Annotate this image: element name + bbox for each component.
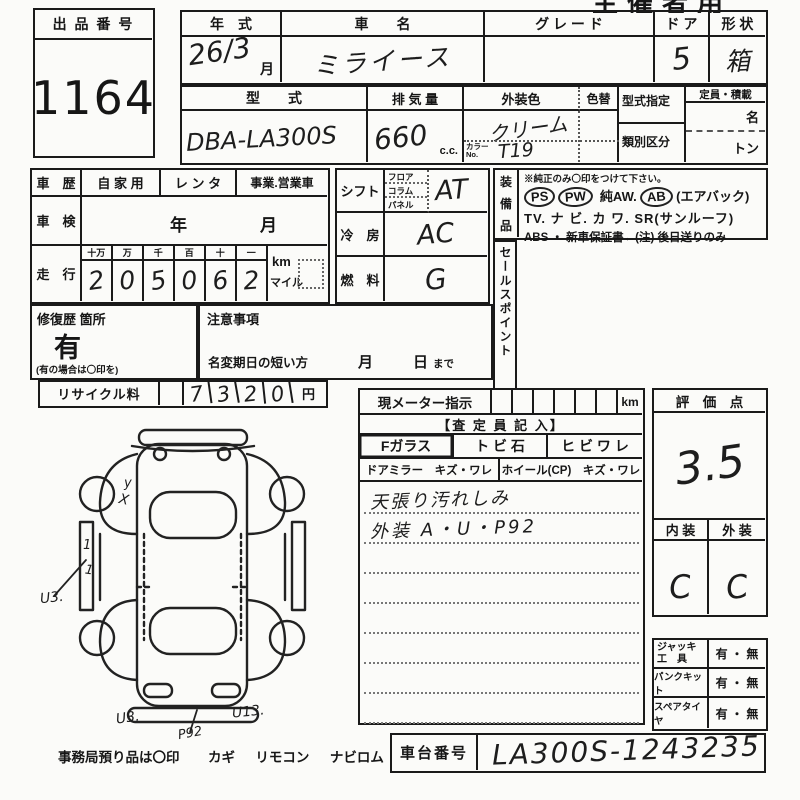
wheel-rear-right <box>270 621 304 655</box>
interior-grade-cell: C <box>654 539 709 614</box>
history-table: 車 歴 自 家 用 レ ン タ 事業.営業車 車 検 年 月 走 行 十万 2 … <box>30 168 330 304</box>
interior-grade: C <box>667 566 693 606</box>
inspection-label: 車 検 <box>32 197 82 246</box>
front-light-right <box>212 684 240 697</box>
displacement-value: 660 <box>372 118 429 156</box>
diagram-u3-left: U3. <box>39 589 64 607</box>
deadline-until: まで <box>433 356 454 371</box>
lot-number-box: 出 品 番 号 1164 <box>33 8 155 158</box>
mileage-digit: 5 <box>141 259 176 301</box>
model-value-cell: DBA-LA300S <box>182 111 368 162</box>
wheel-front-right <box>270 477 304 511</box>
chassis-box: 車台番号 LA300S-1243235 <box>390 733 766 773</box>
right-front-door <box>247 454 285 534</box>
sales-point-label: セールスポイント <box>497 246 514 358</box>
displacement-unit: c.c. <box>440 145 458 157</box>
capacity-label: 定員・積載 <box>686 87 765 103</box>
equipment-label-char: 装 <box>500 173 512 190</box>
name-label: 車 名 <box>282 12 485 37</box>
type-designation-cell: 型式指定 <box>619 87 686 124</box>
repair-box: 修復歴 箇所 有 (有の場合は〇印を) <box>30 304 198 380</box>
repair-note: (有の場合は〇印を) <box>36 362 118 376</box>
door-value-cell: 5 <box>655 37 710 82</box>
deadline-day: 日 <box>413 351 428 372</box>
puncture-kit-label: パンクキット <box>654 669 709 698</box>
capacity-persons-cell: 名 <box>686 103 765 132</box>
vehicle-spec-table: 型 式 排 気 量 外装色 色替 DBA-LA300S 660 c.c. クリー… <box>180 85 768 165</box>
meter-label: 現メーター指示 <box>360 390 492 415</box>
spare-tire-yesno: 有 ・ 無 <box>709 698 765 728</box>
wheel-label: ホイール(CP) キズ・ワレ <box>500 459 642 482</box>
shift-option-panel: パネル <box>385 198 427 210</box>
jack-yesno: 有 ・ 無 <box>709 640 765 669</box>
class-division-cell: 類別区分 <box>619 124 686 162</box>
office-item-navirom: ナビロム <box>330 750 384 765</box>
inspection-year: 年 <box>170 211 187 236</box>
exterior-label: 外 装 <box>709 518 765 539</box>
diagram-mark-y: y <box>124 476 132 491</box>
equipment-line1: PSPW 純AW. AB(エアバック) <box>524 186 765 207</box>
caution-box: 注意事項 名変期日の短い方 月 日 まで <box>198 304 493 380</box>
mileage-label: 走 行 <box>32 246 82 301</box>
color-change-cell <box>580 111 619 162</box>
shift-value: AT <box>433 174 468 207</box>
mileage-km: km <box>272 254 291 269</box>
name-value: ミライース <box>312 37 453 83</box>
score-label: 評 価 点 <box>654 390 765 413</box>
year-value-cell: 26/3 月 <box>182 37 282 82</box>
meter-digit-cell <box>513 390 534 415</box>
note-line <box>364 602 639 634</box>
wheel-front-left <box>80 477 114 511</box>
car-outline-svg <box>40 422 345 740</box>
jack-label: ジャッキ工 具 <box>657 642 697 666</box>
accessories-table: ジャッキ工 具 有 ・ 無 パンクキット 有 ・ 無 スペアタイヤ 有 ・ 無 <box>652 638 768 731</box>
shift-option-column: コラム <box>385 184 427 198</box>
history-label: 車 歴 <box>32 170 82 197</box>
diagram-u13: U13. <box>231 702 265 721</box>
inspection-value-cell: 年 月 <box>82 197 327 246</box>
shift-option-floor: フロア <box>385 170 427 184</box>
fuel-value-cell: G <box>385 257 487 301</box>
name-value-cell: ミライース <box>282 37 485 82</box>
office-label: 事務局預り品は〇印 <box>58 750 180 765</box>
mileage-digit: 0 <box>111 260 143 301</box>
note-line <box>364 692 639 724</box>
diagram-u3-bottom: U3. <box>115 708 141 727</box>
type-designation-label: 型式指定 <box>622 92 670 109</box>
recycle-digit: 0 <box>263 380 293 407</box>
chassis-label: 車台番号 <box>392 735 478 770</box>
mileage-col-100k: 十万 2 <box>82 246 113 301</box>
recycle-unit: 円 <box>292 382 325 405</box>
recycle-label: リサイクル料 <box>40 382 160 405</box>
equipment-content: ※純正のみ〇印をつけて下さい。 PSPW 純AW. AB(エアバック) TV. … <box>519 170 765 237</box>
front-window <box>150 608 236 654</box>
recycle-digit: 2 <box>237 381 266 407</box>
chassis-value-cell: LA300S-1243235 <box>478 735 767 770</box>
color-no-label: カラーNo. <box>466 143 489 159</box>
car-body <box>137 444 247 706</box>
model-label: 型 式 <box>182 87 368 111</box>
history-business: 事業.営業車 <box>237 170 327 197</box>
right-rear-door <box>247 600 285 680</box>
jack-label-cell: ジャッキ工 具 <box>654 640 709 669</box>
note-line <box>364 542 639 574</box>
rear-bumper <box>139 430 247 445</box>
recycle-table: リサイクル料 7 3 2 0 円 <box>38 380 328 408</box>
mileage-col-10k: 万 0 <box>113 246 144 301</box>
note-line <box>364 662 639 694</box>
assessor-note-2: 外装 A・U・P92 <box>370 512 538 544</box>
cooling-value-cell: AC <box>385 213 487 257</box>
recycle-digit: 3 <box>209 380 240 407</box>
office-item-key: カギ <box>208 750 235 765</box>
repair-value: 有 <box>54 326 81 365</box>
equipment-label-col: 装 備 品 <box>495 170 519 237</box>
recycle-digit: 7 <box>183 380 213 407</box>
deadline-month: 月 <box>358 351 373 372</box>
note-line: 天張り汚れしみ <box>364 482 639 514</box>
lot-number-value: 1164 <box>35 40 152 155</box>
fuel-label: 燃 料 <box>337 257 385 301</box>
mileage-digit: 6 <box>204 259 237 300</box>
meter-digit-cell <box>576 390 597 415</box>
door-value: 5 <box>670 41 693 78</box>
note-line <box>364 632 639 664</box>
mileage-digit: 2 <box>79 259 113 301</box>
mileage-col-1k: 千 5 <box>144 246 175 301</box>
office-line: 事務局預り品は〇印 カギ リモコン ナビロム <box>58 746 388 766</box>
inspection-month: 月 <box>260 211 277 236</box>
meter-digit-cell <box>534 390 555 415</box>
shape-value: 箱 <box>724 41 751 78</box>
left-front-door <box>100 454 137 534</box>
meter-digit-cell <box>492 390 513 415</box>
month-suffix: 月 <box>260 59 274 79</box>
exterior-grade-cell: C <box>709 539 765 614</box>
left-rear-door <box>100 600 137 680</box>
mileage-digit: 2 <box>236 260 267 300</box>
front-glass-label: Fガラス <box>360 435 454 459</box>
note-line <box>364 572 639 604</box>
score-value-cell: 3.5 <box>654 413 765 518</box>
door-label: ド ア <box>655 12 710 37</box>
shift-label: シフト <box>337 170 385 213</box>
equipment-note: ※純正のみ〇印をつけて下さい。 <box>524 171 765 185</box>
equipment-ab: AB <box>640 186 674 208</box>
equipment-ab-suffix: (エアバック) <box>676 189 749 204</box>
model-value: DBA-LA300S <box>185 121 337 157</box>
shift-table: シフト フロア コラム パネル AT 冷 房 AC 燃 料 G <box>335 168 490 304</box>
shift-value-cell: AT <box>429 170 487 213</box>
diagram-p92: P92 <box>177 724 204 743</box>
score-value: 3.5 <box>671 435 747 495</box>
interior-label: 内 装 <box>654 518 709 539</box>
meter-unit: km <box>618 390 642 415</box>
wheel-rear-left <box>80 621 114 655</box>
sales-point-box: セールスポイント <box>493 240 517 390</box>
mileage-col-1: 一 2 <box>237 246 268 301</box>
assessor-header: 【査 定 員 記 入】 <box>360 415 642 435</box>
equipment-line2: TV. ナ ビ. カ ワ. SR(サンルーフ) <box>524 208 765 227</box>
office-item-remote: リモコン <box>255 750 309 765</box>
capacity-persons-label: 名 <box>746 107 759 126</box>
class-division-label: 類別区分 <box>622 133 670 150</box>
exterior-grade: C <box>723 566 750 607</box>
diagram-tick-1: 1 <box>83 538 91 553</box>
mileage-header: 百 <box>175 246 204 261</box>
equipment-label-char: 備 <box>500 195 512 212</box>
equipment-label-char: 品 <box>500 217 512 234</box>
equipment-box: 装 備 品 ※純正のみ〇印をつけて下さい。 PSPW 純AW. AB(エアバック… <box>493 168 768 240</box>
color-change-strip <box>580 140 619 162</box>
history-rental: レ ン タ <box>161 170 237 197</box>
equipment-line3: ABS ・ 新車保証書←(注) 後日送りのみ <box>524 229 765 245</box>
displacement-label: 排 気 量 <box>368 87 464 111</box>
rear-window <box>150 492 236 538</box>
meter-digit-cell <box>555 390 576 415</box>
shift-options-cell: フロア コラム パネル <box>385 170 429 213</box>
fuel-value: G <box>423 261 448 296</box>
assessor-table: 現メーター指示 km 【査 定 員 記 入】 Fガラス ト ビ 石 ヒ ビ ワ … <box>358 388 645 725</box>
capacity-tons-cell: トン <box>686 132 765 162</box>
color-change-label: 色替 <box>580 87 619 111</box>
grade-value-cell <box>485 37 655 82</box>
displacement-value-cell: 660 c.c. <box>368 111 464 162</box>
mileage-digit: 0 <box>173 260 205 300</box>
history-private: 自 家 用 <box>82 170 161 197</box>
vehicle-top-table: 年 式 車 名 グ レ ー ド ド ア 形 状 26/3 月 ミライース 5 箱 <box>180 10 768 85</box>
shape-value-cell: 箱 <box>710 37 765 82</box>
mileage-unit-cell: km マイル <box>268 246 327 301</box>
stone-chip-label: ト ビ 石 <box>454 435 548 459</box>
door-mirror-label: ドアミラー キズ・ワレ <box>360 459 500 482</box>
spare-tire-label: スペアタイヤ <box>654 698 709 728</box>
mileage-col-10: 十 6 <box>206 246 237 301</box>
caution-label: 注意事項 <box>207 309 259 328</box>
equipment-aw: 純AW. <box>600 189 637 204</box>
recycle-blank-cell <box>160 382 184 405</box>
chassis-value: LA300S-1243235 <box>492 729 762 771</box>
cooling-value: AC <box>416 217 456 251</box>
deadline-label: 名変期日の短い方 <box>208 352 308 371</box>
equipment-ps: PS <box>523 186 556 208</box>
mileage-checkbox <box>298 259 324 289</box>
mileage-col-100: 百 0 <box>175 246 206 301</box>
car-diagram: y X 1 1 U3. U3. P92 U13. <box>40 422 345 744</box>
crack-label: ヒ ビ ワ レ <box>548 435 642 459</box>
cooling-label: 冷 房 <box>337 213 385 257</box>
mileage-header: 一 <box>237 246 266 261</box>
lot-number-label: 出 品 番 号 <box>35 10 152 40</box>
assessor-note-1: 天張り汚れしみ <box>370 484 511 515</box>
score-table: 評 価 点 3.5 内 装 外 装 C C <box>652 388 768 617</box>
color-value-cell: クリーム カラーNo. T19 <box>464 111 580 162</box>
color-no-strip: カラーNo. T19 <box>464 140 580 162</box>
shape-label: 形 状 <box>710 12 765 37</box>
meter-digit-cell <box>597 390 618 415</box>
year-value: 26/3 <box>186 31 253 72</box>
front-light-left <box>144 684 172 697</box>
puncture-kit-yesno: 有 ・ 無 <box>709 669 765 698</box>
note-line: 外装 A・U・P92 <box>364 512 639 544</box>
right-panel <box>292 522 305 610</box>
color-no-value: T19 <box>497 139 534 163</box>
grade-label: グ レ ー ド <box>485 12 655 37</box>
capacity-tons-label: トン <box>733 138 759 157</box>
equipment-pw: PW <box>558 186 594 208</box>
